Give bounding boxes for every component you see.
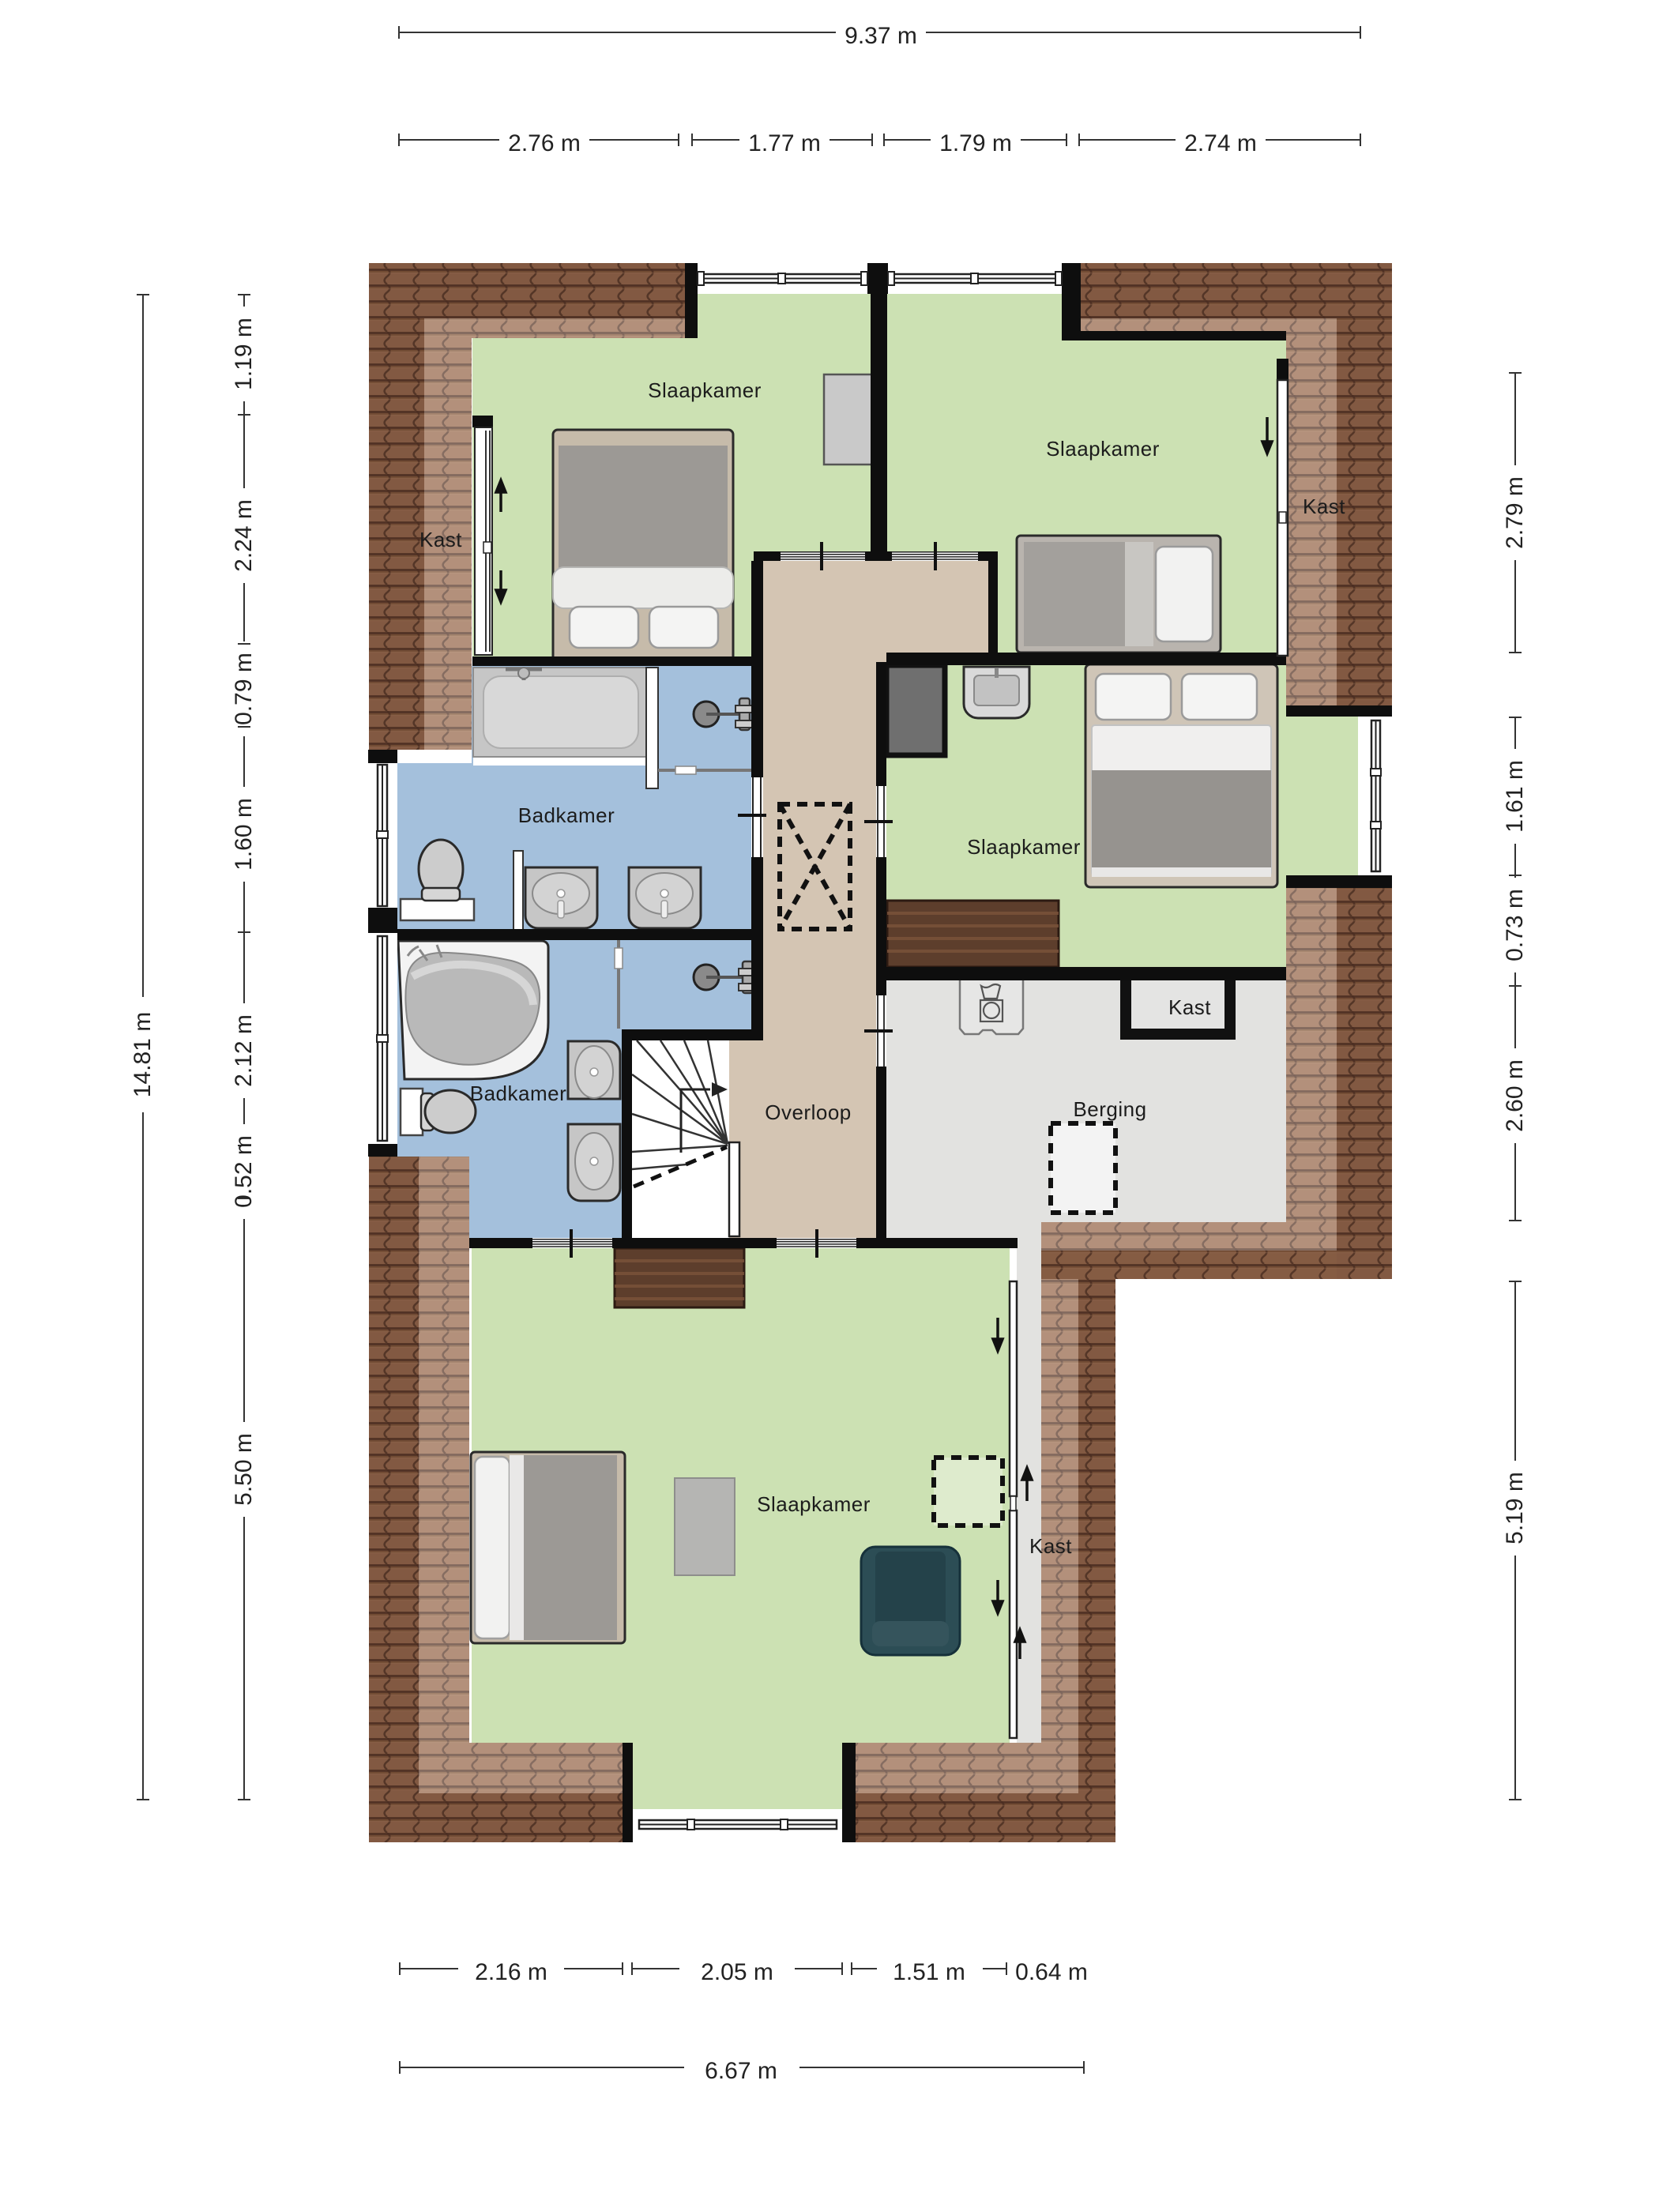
svg-text:Kast: Kast	[1029, 1534, 1072, 1558]
svg-text:Slaapkamer: Slaapkamer	[1046, 437, 1160, 461]
svg-text:2.79 m: 2.79 m	[1502, 476, 1528, 549]
svg-text:1.60 m: 1.60 m	[231, 798, 257, 871]
svg-text:0.64 m: 0.64 m	[1015, 1959, 1088, 1985]
svg-text:Overloop: Overloop	[765, 1100, 852, 1124]
svg-text:2.74 m: 2.74 m	[1184, 130, 1257, 156]
svg-text:5.19 m: 5.19 m	[1502, 1472, 1528, 1544]
svg-text:1.79 m: 1.79 m	[939, 130, 1012, 156]
svg-text:2.60 m: 2.60 m	[1502, 1059, 1528, 1132]
svg-text:1.51 m: 1.51 m	[893, 1959, 965, 1985]
svg-text:Kast: Kast	[419, 528, 462, 551]
svg-text:2.16 m: 2.16 m	[475, 1959, 547, 1985]
svg-text:Slaapkamer: Slaapkamer	[648, 378, 762, 402]
svg-text:Badkamer: Badkamer	[518, 803, 615, 827]
svg-text:Slaapkamer: Slaapkamer	[757, 1492, 871, 1516]
svg-text:2.12 m: 2.12 m	[231, 1014, 257, 1087]
svg-text:1.77 m: 1.77 m	[748, 130, 821, 156]
svg-text:2.05 m: 2.05 m	[701, 1959, 773, 1985]
svg-text:0.73 m: 0.73 m	[1502, 889, 1528, 961]
svg-text:2.24 m: 2.24 m	[231, 499, 257, 572]
svg-text:Berging: Berging	[1073, 1097, 1146, 1121]
svg-text:Kast: Kast	[1303, 495, 1345, 518]
svg-text:9.37 m: 9.37 m	[845, 23, 917, 49]
svg-text:6.67 m: 6.67 m	[705, 2058, 777, 2084]
svg-text:0.79 m: 0.79 m	[231, 653, 257, 725]
svg-text:Badkamer: Badkamer	[470, 1082, 567, 1105]
svg-text:1.19 m: 1.19 m	[231, 318, 257, 390]
svg-text:5.50 m: 5.50 m	[231, 1433, 257, 1506]
svg-text:14.81 m: 14.81 m	[130, 1012, 156, 1097]
svg-text:Slaapkamer: Slaapkamer	[967, 835, 1081, 859]
svg-text:Kast: Kast	[1168, 995, 1211, 1019]
svg-text:1.61 m: 1.61 m	[1502, 760, 1528, 833]
svg-text:2.76 m: 2.76 m	[508, 130, 581, 156]
svg-text:0.52 m: 0.52 m	[231, 1135, 257, 1208]
